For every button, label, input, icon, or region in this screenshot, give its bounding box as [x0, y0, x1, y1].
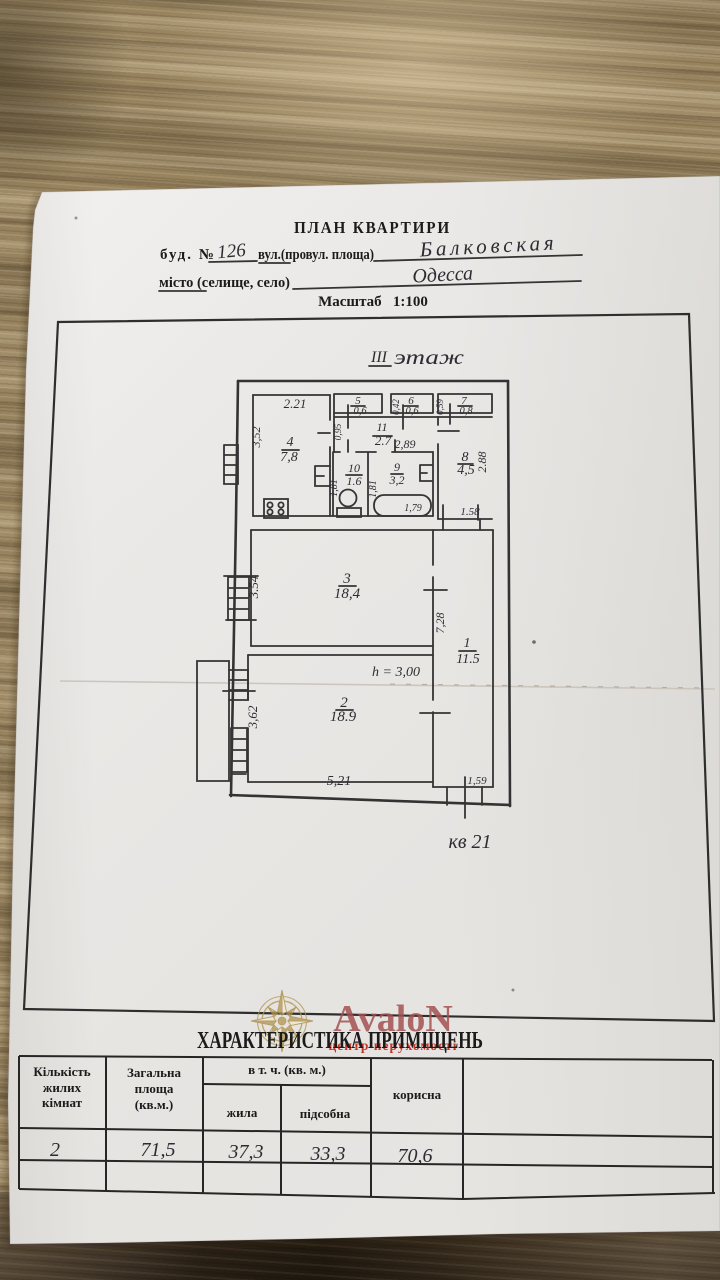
svg-text:33,3: 33,3 [310, 1143, 346, 1165]
svg-text:ХАРАКТЕРИСТИКА ПРИМІЩЕНЬ: ХАРАКТЕРИСТИКА ПРИМІЩЕНЬ [197, 1028, 483, 1054]
svg-text:III: III [370, 349, 388, 366]
svg-text:37,3: 37,3 [228, 1141, 264, 1163]
svg-text:в т. ч. (кв. м.): в т. ч. (кв. м.) [248, 1062, 326, 1077]
svg-text:3,2: 3,2 [389, 473, 405, 487]
svg-text:этаж: этаж [394, 345, 465, 369]
svg-text:9: 9 [394, 460, 400, 474]
svg-text:4: 4 [287, 435, 294, 450]
svg-text:70,6: 70,6 [398, 1145, 433, 1167]
svg-text:0,95: 0,95 [334, 423, 344, 440]
svg-text:18.9: 18.9 [330, 709, 357, 725]
svg-text:Масштаб 1:100: Масштаб 1:100 [318, 294, 428, 310]
svg-text:2.21: 2.21 [284, 396, 307, 411]
svg-text:1.58: 1.58 [460, 506, 480, 518]
svg-text:Кількість: Кількість [33, 1064, 90, 1079]
svg-text:площа: площа [135, 1081, 174, 1096]
svg-text:(кв.м.): (кв.м.) [135, 1097, 174, 1112]
svg-text:місто (селище, село): місто (селище, село) [159, 275, 290, 291]
svg-text:1,59: 1,59 [467, 775, 487, 787]
svg-text:0,42: 0,42 [391, 399, 401, 415]
svg-text:1: 1 [464, 636, 471, 651]
svg-text:1,81: 1,81 [368, 480, 379, 498]
svg-text:жилих: жилих [43, 1080, 82, 1095]
svg-text:2,89: 2,89 [395, 437, 416, 451]
svg-text:0,59: 0,59 [435, 399, 445, 415]
svg-text:2.88: 2.88 [475, 452, 489, 473]
svg-text:корисна: корисна [393, 1087, 442, 1102]
svg-text:126: 126 [216, 240, 247, 263]
svg-text:10: 10 [348, 461, 360, 475]
svg-text:підсобна: підсобна [300, 1106, 351, 1121]
svg-text:буд. №: буд. № [160, 247, 214, 263]
svg-text:0,6: 0,6 [353, 406, 367, 417]
svg-text:11: 11 [376, 420, 387, 434]
svg-text:11.5: 11.5 [456, 652, 479, 667]
svg-text:жила: жила [227, 1105, 258, 1120]
svg-text:4,5: 4,5 [457, 463, 475, 478]
svg-text:1.6: 1.6 [347, 474, 362, 488]
svg-text:0,6: 0,6 [405, 406, 419, 417]
svg-text:18,4: 18,4 [334, 586, 361, 602]
svg-text:ПЛАН КВАРТИРИ: ПЛАН КВАРТИРИ [294, 218, 451, 237]
svg-text:1,81: 1,81 [329, 479, 340, 497]
svg-text:3,52: 3,52 [249, 427, 263, 449]
svg-text:3.54: 3.54 [246, 575, 261, 599]
svg-text:7,28: 7,28 [433, 613, 447, 634]
svg-text:3,62: 3,62 [245, 705, 260, 729]
svg-text:h = 3,00: h = 3,00 [372, 665, 420, 680]
svg-text:7,8: 7,8 [280, 450, 298, 465]
svg-text:кв 21: кв 21 [448, 831, 491, 853]
svg-text:кімнат: кімнат [42, 1095, 83, 1110]
svg-text:0,8: 0,8 [459, 406, 473, 417]
svg-text:2: 2 [50, 1139, 60, 1161]
svg-text:Одесса: Одесса [412, 262, 474, 287]
svg-text:Загальна: Загальна [127, 1065, 182, 1080]
svg-text:5,21: 5,21 [327, 774, 352, 789]
svg-text:вул.(провул. площа): вул.(провул. площа) [258, 247, 374, 263]
svg-text:1,79: 1,79 [404, 503, 422, 514]
svg-text:71,5: 71,5 [141, 1139, 176, 1161]
svg-text:3: 3 [342, 571, 351, 587]
